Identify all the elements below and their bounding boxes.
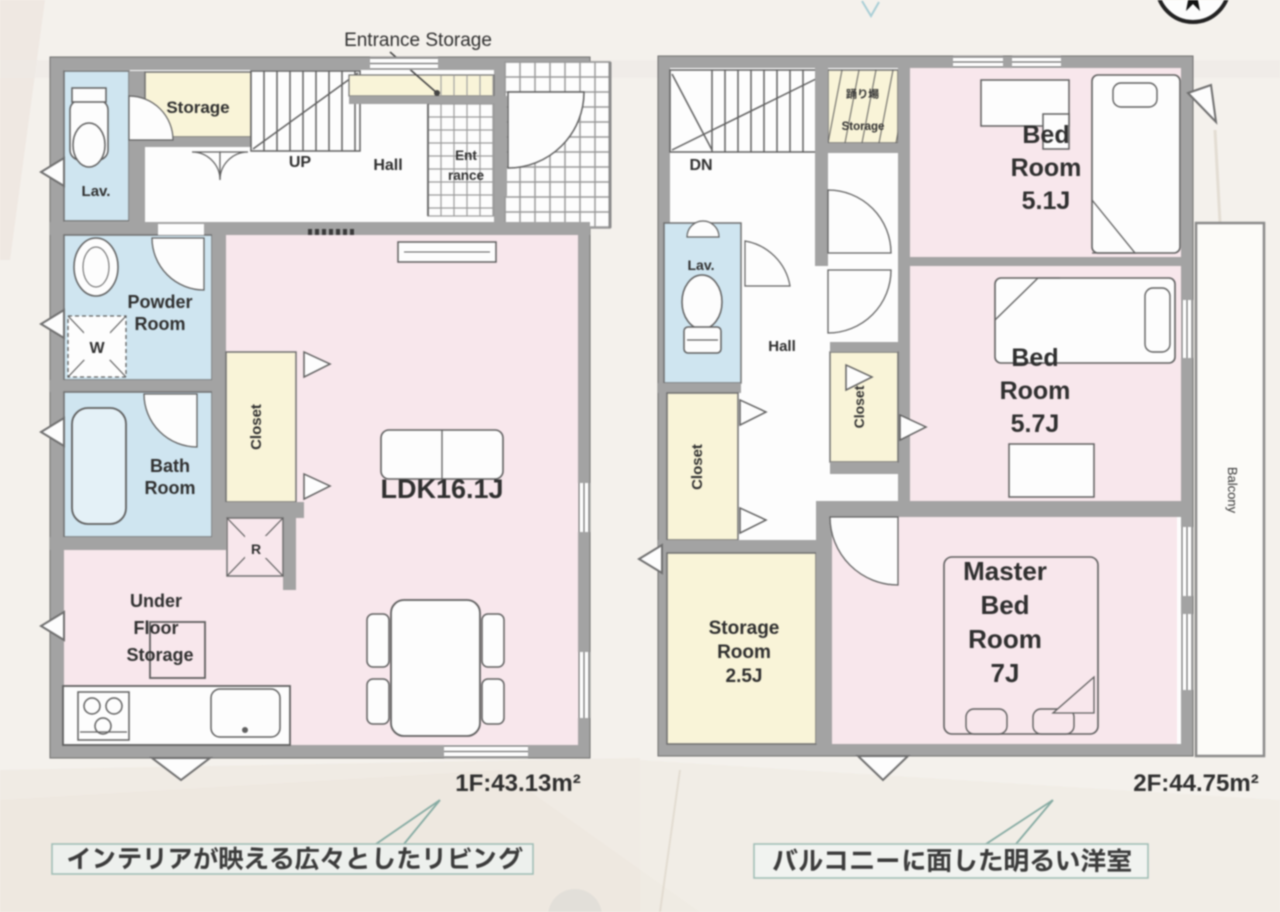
- svg-text:Bath: Bath: [150, 456, 190, 476]
- svg-text:Hall: Hall: [373, 157, 402, 174]
- svg-text:Storage: Storage: [126, 645, 193, 665]
- svg-text:Balcony: Balcony: [1225, 467, 1240, 514]
- svg-text:R: R: [251, 541, 261, 557]
- svg-text:Hall: Hall: [768, 338, 796, 355]
- svg-text:Room: Room: [1011, 154, 1082, 182]
- svg-text:rance: rance: [448, 168, 485, 183]
- svg-text:Closet: Closet: [248, 404, 265, 450]
- svg-text:Powder: Powder: [127, 292, 192, 312]
- svg-text:2F:44.75m²: 2F:44.75m²: [1133, 770, 1258, 797]
- svg-text:Bed: Bed: [980, 590, 1029, 620]
- svg-text:LDK16.1J: LDK16.1J: [380, 474, 503, 504]
- svg-text:Entrance Storage: Entrance Storage: [344, 30, 492, 51]
- svg-text:Room: Room: [968, 624, 1042, 654]
- svg-text:5.1J: 5.1J: [1022, 187, 1071, 215]
- svg-text:Under: Under: [130, 591, 182, 611]
- svg-text:Closet: Closet: [689, 444, 706, 490]
- svg-text:1F:43.13m²: 1F:43.13m²: [455, 770, 580, 797]
- svg-text:Storage: Storage: [166, 98, 229, 117]
- svg-text:W: W: [89, 340, 105, 357]
- svg-text:Lav.: Lav.: [82, 183, 111, 200]
- svg-text:Room: Room: [1000, 377, 1071, 405]
- svg-text:Bed: Bed: [1011, 344, 1058, 372]
- svg-text:UP: UP: [289, 154, 312, 171]
- svg-text:2.5J: 2.5J: [726, 666, 763, 687]
- svg-text:Bed: Bed: [1022, 121, 1069, 149]
- svg-text:Closet: Closet: [851, 385, 867, 428]
- svg-text:Storage: Storage: [709, 618, 780, 639]
- svg-text:5.7J: 5.7J: [1011, 410, 1060, 438]
- svg-text:DN: DN: [689, 157, 712, 174]
- svg-text:7J: 7J: [991, 658, 1020, 688]
- svg-text:Floor: Floor: [134, 618, 179, 638]
- svg-text:Room: Room: [717, 642, 771, 663]
- svg-text:Room: Room: [145, 478, 196, 498]
- svg-text:Storage: Storage: [842, 121, 885, 133]
- svg-text:Master: Master: [963, 556, 1047, 586]
- svg-text:Lav.: Lav.: [688, 257, 715, 273]
- svg-text:Ent: Ent: [455, 148, 477, 163]
- svg-text:Room: Room: [135, 314, 186, 334]
